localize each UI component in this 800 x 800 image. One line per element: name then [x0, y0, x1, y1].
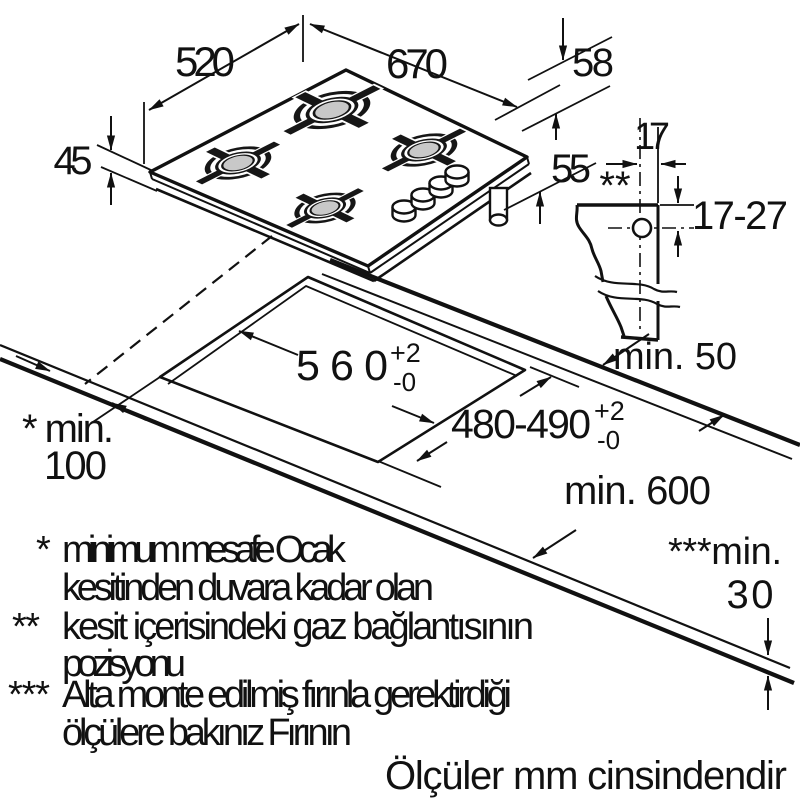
- glass-height-label: 45: [54, 139, 93, 183]
- dimension-glass-height-45: 45: [54, 116, 158, 205]
- worktop-thickness-value: 30: [727, 573, 774, 617]
- grate-height-label: 58: [572, 41, 614, 85]
- dimension-rear-clearance-50: min. 50: [603, 334, 737, 378]
- hob-illustration: [150, 70, 531, 281]
- cutout-depth-label: 480-490: [451, 401, 591, 447]
- cutout-width-tol-plus: +2: [390, 338, 421, 368]
- footnote1-marker: *: [36, 529, 51, 571]
- footnote2-line1: kesit içerisindeki gaz bağlantısının: [62, 606, 534, 648]
- units-note: Ölçüler mm cinsindendir: [385, 754, 787, 798]
- cutout-width-tol-minus: -0: [393, 367, 416, 397]
- hob-depth-label: 520: [175, 38, 235, 85]
- gas-connection-point: [633, 219, 651, 237]
- dimension-heights-58-55: 58 55: [504, 18, 614, 224]
- body-height-label: 55: [551, 147, 591, 191]
- section-left-edge-upper: [576, 205, 603, 282]
- gas-offset-x-label: 17: [634, 116, 670, 158]
- installation-diagram: 560 +2 -0 480-490 +2 -0 min. 600 * min. …: [0, 0, 800, 800]
- gas-section-detail: 17 ** 17-27: [576, 116, 788, 340]
- worktop-thickness-label: ***min.: [668, 531, 782, 573]
- gas-pipe: [490, 188, 507, 226]
- rear-clearance-label: min. 50: [613, 336, 737, 378]
- cutout-depth-tol-plus: +2: [594, 396, 625, 426]
- section-break-line-1: [595, 276, 677, 292]
- knob-4: [446, 166, 469, 187]
- cutout-depth-tol-minus: -0: [597, 425, 620, 455]
- section-left-edge-lower: [606, 296, 624, 336]
- footnote3-marker: ***: [8, 674, 50, 716]
- footnote2-marker: **: [12, 606, 40, 648]
- footnote1-line2: kesitinden duvara kadar olan: [62, 567, 434, 609]
- gas-offset-y-label: 17-27: [692, 194, 788, 238]
- dimension-worktop-thickness-30: ***min. 30: [668, 531, 782, 710]
- cutout-width-label: 560: [296, 342, 388, 390]
- footnote1-line1: minimum mesafe Ocak: [62, 529, 347, 571]
- wall-clearance-value: 100: [44, 444, 107, 488]
- installation-diagram-page: 560 +2 -0 480-490 +2 -0 min. 600 * min. …: [0, 0, 800, 800]
- hob-width-label: 670: [386, 40, 448, 87]
- worktop-min-depth-label: min. 600: [564, 469, 711, 513]
- footnote3-line1: Alta monte edilmiş fırınla gerektirdiği: [62, 674, 512, 716]
- footnote3-line2: ölçülere bakınız Fırının: [62, 712, 352, 754]
- gas-position-marker: **: [599, 164, 630, 208]
